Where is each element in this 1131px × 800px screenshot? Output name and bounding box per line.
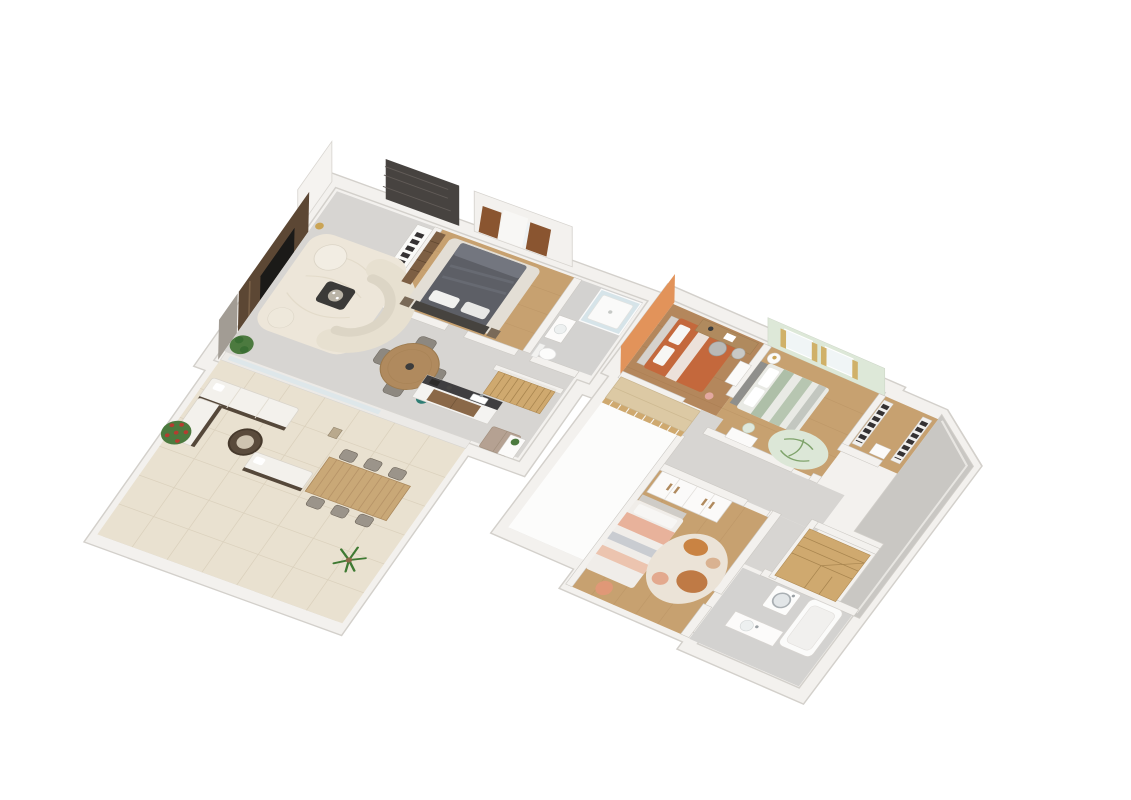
- floor-plan-render: [0, 0, 1131, 800]
- floor-plans-canvas: [0, 0, 1131, 800]
